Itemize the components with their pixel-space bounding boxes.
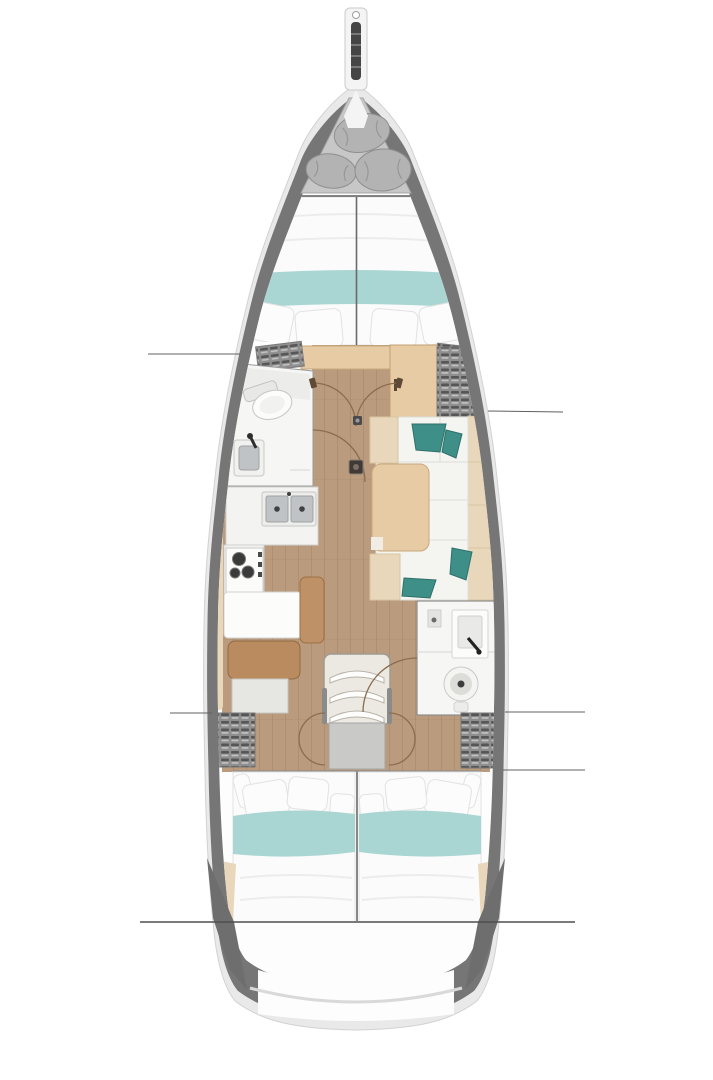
- faucet-icon: [476, 649, 481, 654]
- anchor-roller-channel: [351, 22, 361, 80]
- teal-cushion: [402, 578, 436, 598]
- pillow: [286, 776, 329, 812]
- stove-knob: [258, 562, 262, 567]
- teal-cushion: [412, 424, 446, 452]
- burner-icon: [242, 566, 254, 578]
- burner-icon: [233, 553, 246, 566]
- nav-seat-back: [300, 577, 324, 643]
- burner-icon: [230, 568, 240, 578]
- drain-icon: [432, 618, 437, 623]
- aft-toilet-base: [454, 702, 468, 712]
- aft-toilet-drain: [458, 681, 465, 688]
- bow-fitting: [353, 12, 360, 19]
- stove-knob: [258, 552, 262, 557]
- stair-rail-port: [322, 688, 327, 724]
- aft-cabin-port: [232, 772, 355, 922]
- boat-floor-plan: [0, 0, 713, 1080]
- stair-landing: [329, 723, 385, 769]
- galley-faucet: [287, 492, 291, 496]
- aft-head-basin: [458, 616, 482, 648]
- forward-head-basin: [239, 446, 259, 470]
- nav-bench: [228, 641, 300, 679]
- drain-icon: [299, 506, 305, 512]
- aft-head: [417, 601, 507, 715]
- table-notch: [371, 537, 383, 550]
- starboard-teal-runner: [359, 810, 481, 856]
- aft-cabin-starboard: [359, 772, 482, 922]
- port-cabinet: [232, 679, 288, 713]
- bowsprit: [345, 8, 367, 90]
- sofa-chaise-aft: [370, 554, 400, 600]
- pillow: [369, 308, 418, 350]
- mast-step-dot: [353, 464, 359, 470]
- drain-icon: [274, 506, 280, 512]
- port-teal-runner: [233, 810, 355, 856]
- latch-dot: [356, 419, 360, 423]
- pillow: [384, 776, 427, 812]
- stove-knob: [258, 572, 262, 577]
- nav-desk: [224, 592, 302, 638]
- sofa-chaise-forward: [370, 417, 398, 463]
- floor-plan-canvas: [0, 0, 713, 1080]
- stair-rail-starboard: [387, 688, 392, 724]
